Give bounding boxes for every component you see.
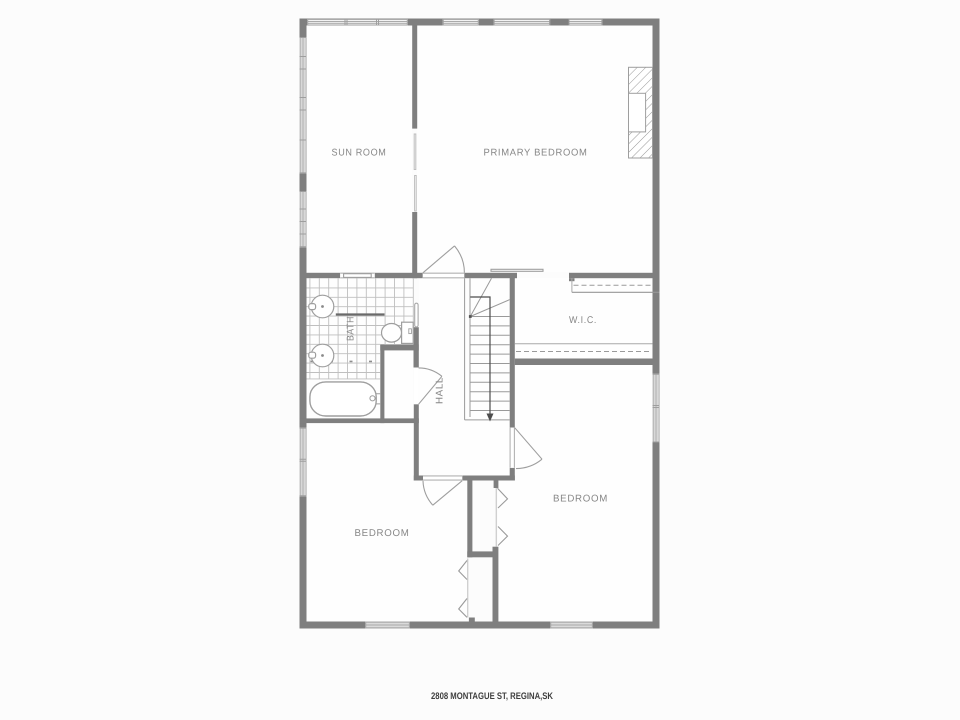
svg-text:HALL: HALL — [434, 377, 445, 404]
svg-text:BEDROOM: BEDROOM — [553, 494, 608, 505]
svg-text:PRIMARY BEDROOM: PRIMARY BEDROOM — [484, 148, 588, 159]
svg-text:SUN ROOM: SUN ROOM — [332, 148, 387, 159]
svg-text:2808 MONTAGUE ST, REGINA,SK: 2808 MONTAGUE ST, REGINA,SK — [431, 691, 553, 702]
svg-text:BATH: BATH — [346, 316, 357, 341]
svg-text:W.I.C.: W.I.C. — [569, 315, 597, 326]
svg-text:BEDROOM: BEDROOM — [355, 528, 410, 539]
